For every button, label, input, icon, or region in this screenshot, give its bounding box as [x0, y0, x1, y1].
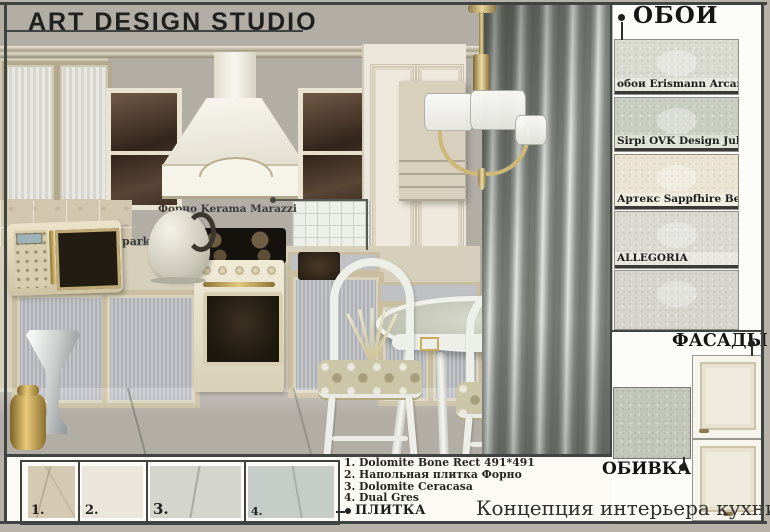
frame-right	[761, 2, 764, 524]
annotation-dot	[618, 14, 625, 21]
upper-cabinets	[0, 58, 108, 200]
tile-number: 1.	[31, 503, 45, 518]
oven-door	[203, 292, 283, 366]
range-hood-band	[162, 164, 306, 199]
frame-kitchen-bottom	[4, 454, 612, 457]
title-underline	[5, 30, 303, 32]
chair-cushion	[318, 360, 422, 398]
tile-sample: 1.	[28, 466, 75, 518]
chair-leg	[323, 396, 335, 456]
frame-wallpaper-bottom	[611, 330, 762, 332]
frame-left	[4, 2, 7, 524]
frame-top	[0, 2, 767, 5]
annotation-dot	[345, 508, 351, 514]
microwave-door	[55, 228, 121, 290]
design-board: ART DESIGN STUDIO Форно Kerama Marazzi	[0, 0, 770, 532]
annotation-line	[336, 511, 345, 513]
tile-number: 2.	[85, 503, 99, 518]
studio-title: ART DESIGN STUDIO	[28, 8, 318, 37]
range-cooker	[194, 260, 284, 392]
swatch-label: ALLEGORIA	[615, 252, 738, 268]
frame-sidebar-divider	[610, 2, 612, 456]
divider	[78, 462, 80, 523]
upholstery-section-title: ОБИВКА	[602, 459, 691, 479]
frame-bottom	[0, 521, 767, 524]
facade-door-panel	[700, 362, 756, 430]
tile-number: 3.	[153, 500, 169, 518]
wallpaper-swatch: Артекс Sappfhire Венеция	[614, 154, 739, 210]
swatch-label: обои Erismann Arcano	[615, 78, 738, 94]
tile-list-item: 2. Напольная плитка Форно	[344, 469, 535, 481]
brass-jar	[10, 394, 46, 450]
tile-number: 4.	[251, 505, 262, 518]
cabinet-mullion	[111, 151, 177, 155]
cabinet-mullion	[303, 151, 365, 155]
board-caption: Концепция интерьера кухни	[476, 496, 770, 520]
annotation-line	[366, 199, 368, 250]
parquet-label: park	[122, 235, 150, 248]
chandelier-shade	[424, 93, 474, 131]
tile-samples-box: 1. 2. 3. 4.	[20, 460, 340, 525]
oven-handle	[203, 282, 275, 287]
swatch-label: Артекс Sappfhire Венеция	[615, 193, 738, 209]
range-hood-chimney	[214, 52, 256, 100]
annotation-line	[621, 22, 623, 40]
kettle	[148, 210, 210, 280]
annotation-line	[276, 199, 368, 201]
chair-leg	[405, 396, 417, 456]
wallpaper-swatch: Sirpi OVK Design Juliet uni	[614, 97, 739, 152]
microwave	[7, 220, 123, 296]
tiles-section-title: ПЛИТКА	[355, 503, 426, 518]
divider	[244, 462, 246, 523]
chair-back	[330, 258, 414, 374]
wallpaper-swatch: обои Erismann Arcano	[614, 39, 739, 95]
glass-cabinet	[298, 88, 370, 210]
cabinet-door	[56, 61, 112, 205]
range-hood	[162, 98, 306, 166]
kitchen-collage: ART DESIGN STUDIO Форно Kerama Marazzi	[0, 2, 612, 456]
annotation-dot	[748, 340, 755, 347]
microwave-display	[16, 233, 42, 245]
white-tile-sample	[292, 201, 370, 251]
annotation-line	[751, 347, 753, 356]
door-handle	[699, 429, 709, 433]
cabinet-door	[2, 61, 58, 205]
range-knobs	[202, 266, 276, 276]
wallpaper-section-title: ОБОИ	[633, 2, 718, 29]
tile-sample: 4.	[248, 466, 334, 518]
tile-sample: 3.	[150, 466, 241, 518]
facade-door-photo	[692, 355, 764, 439]
chair-leg	[462, 416, 472, 456]
annotation-dot	[679, 464, 686, 471]
chandelier-finial	[478, 168, 486, 190]
chair	[316, 258, 428, 456]
swatch-label	[615, 328, 738, 329]
wallpaper-swatch	[614, 270, 739, 330]
wallpaper-swatch: ALLEGORIA	[614, 211, 739, 269]
divider	[146, 462, 148, 523]
tile-sample: 2.	[82, 466, 143, 518]
chair-stretcher	[332, 436, 408, 441]
curtain	[482, 2, 612, 456]
swatch-label: Sirpi OVK Design Juliet uni	[615, 135, 738, 151]
chandelier-shade	[515, 115, 547, 145]
upholstery-fabric-swatch	[613, 387, 691, 459]
chair-spoke	[371, 313, 398, 365]
